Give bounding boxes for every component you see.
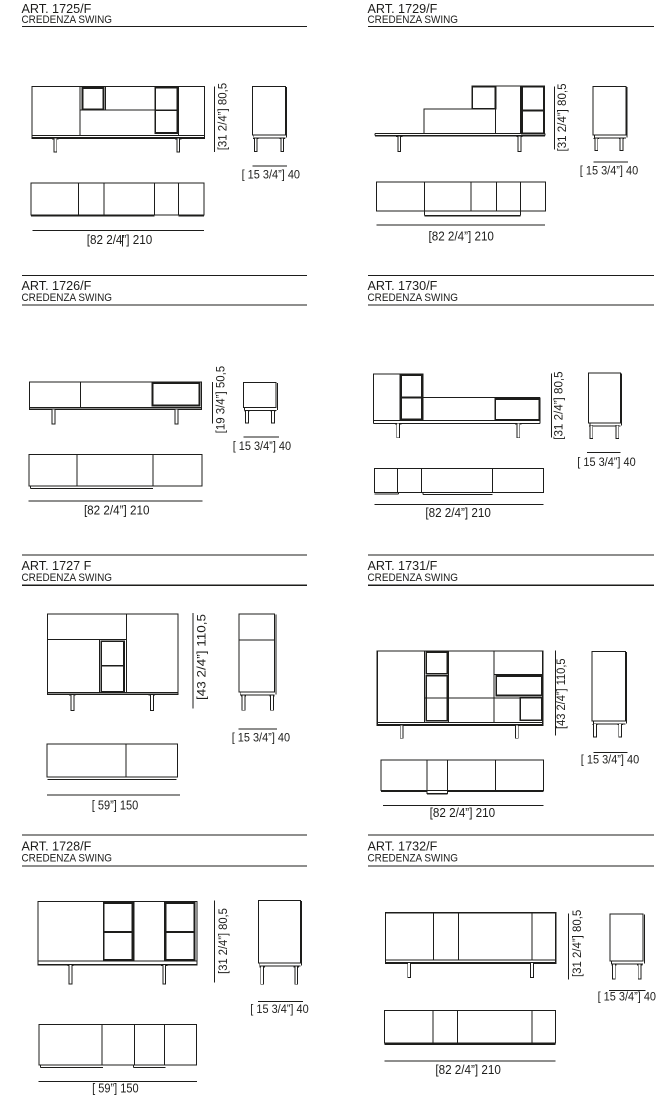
svg-text:[31 2/4”] 80,5: [31 2/4”] 80,5 <box>215 83 229 151</box>
svg-text:ART. 1726/F: ART. 1726/F <box>22 279 92 293</box>
svg-text:CREDENZA SWING: CREDENZA SWING <box>22 853 113 865</box>
svg-text:[31 2/4”] 80,5: [31 2/4”] 80,5 <box>552 371 566 439</box>
svg-text:CREDENZA SWING: CREDENZA SWING <box>368 14 459 26</box>
svg-text:CREDENZA SWING: CREDENZA SWING <box>368 292 459 304</box>
svg-text:[ 15 3/4”] 40: [ 15 3/4”] 40 <box>577 455 636 469</box>
svg-text:[82 2/4”] 210: [82 2/4”] 210 <box>84 502 150 517</box>
svg-text:ART. 1731/F: ART. 1731/F <box>368 559 438 573</box>
svg-text:[82 2/4”] 210: [82 2/4”] 210 <box>87 232 153 247</box>
svg-text:[19 3/4”] 50,5: [19 3/4”] 50,5 <box>214 366 228 434</box>
svg-text:[ 15 3/4”] 40: [ 15 3/4”] 40 <box>233 439 292 453</box>
svg-text:[31 2/4”] 80,5: [31 2/4”] 80,5 <box>555 83 569 151</box>
svg-text:[ 15 3/4”] 40: [ 15 3/4”] 40 <box>598 990 657 1004</box>
svg-text:CREDENZA SWING: CREDENZA SWING <box>368 572 459 584</box>
svg-text:[43 2/4”] 110,5: [43 2/4”] 110,5 <box>554 658 568 729</box>
svg-text:[ 15 3/4”] 40: [ 15 3/4”] 40 <box>250 1002 309 1016</box>
svg-text:CREDENZA SWING: CREDENZA SWING <box>22 572 113 584</box>
svg-text:[ 15 3/4”] 40: [ 15 3/4”] 40 <box>581 752 640 766</box>
svg-text:[ 15 3/4”] 40: [ 15 3/4”] 40 <box>232 731 291 745</box>
svg-text:ART. 1732/F: ART. 1732/F <box>368 839 438 853</box>
svg-text:[ 59”] 150: [ 59”] 150 <box>92 798 139 813</box>
svg-text:[ 15 3/4”] 40: [ 15 3/4”] 40 <box>242 167 301 181</box>
svg-text:[ 59”] 150: [ 59”] 150 <box>92 1080 139 1095</box>
svg-text:CREDENZA SWING: CREDENZA SWING <box>368 853 459 865</box>
svg-text:[31 2/4”] 80,5: [31 2/4”] 80,5 <box>216 908 230 974</box>
svg-text:CREDENZA SWING: CREDENZA SWING <box>22 14 113 26</box>
svg-text:[31 2/4”] 80,5: [31 2/4”] 80,5 <box>570 910 584 977</box>
svg-text:ART. 1727 F: ART. 1727 F <box>22 559 92 573</box>
svg-text:[43 2/4”] 110,5: [43 2/4”] 110,5 <box>195 614 209 700</box>
svg-text:ART. 1730/F: ART. 1730/F <box>368 279 438 293</box>
svg-text:[82 2/4”] 210: [82 2/4”] 210 <box>429 228 494 243</box>
svg-text:[82 2/4”] 210: [82 2/4”] 210 <box>425 505 491 520</box>
svg-text:ART. 1728/F: ART. 1728/F <box>22 839 92 853</box>
svg-text:[82 2/4”] 210: [82 2/4”] 210 <box>435 1062 501 1077</box>
svg-text:[ 15 3/4”] 40: [ 15 3/4”] 40 <box>580 163 639 177</box>
svg-text:[82 2/4”] 210: [82 2/4”] 210 <box>430 805 496 820</box>
svg-text:CREDENZA SWING: CREDENZA SWING <box>22 292 113 304</box>
